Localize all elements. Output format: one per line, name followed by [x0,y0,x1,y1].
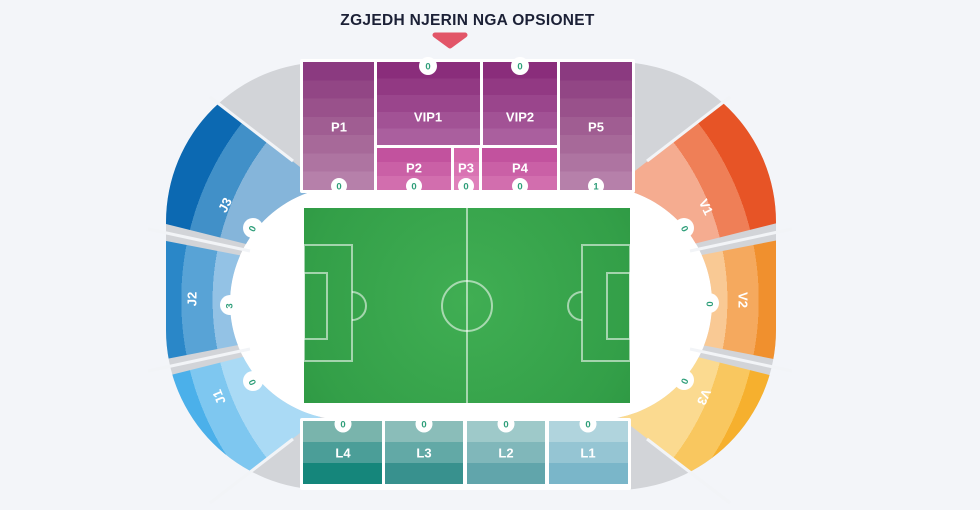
badge-l1-count: 0 [585,420,590,431]
badge-l1: 0 [580,416,597,433]
section-vip1-label: VIP1 [414,110,442,125]
badge-p1: 0 [331,178,347,194]
badge-vip2: 0 [511,57,529,75]
page-background: ZGJEDH NJERIN NGA OPSIONET [0,0,980,510]
section-p2-label: P2 [406,161,422,176]
badge-l4: 0 [335,416,352,433]
badge-p4-count: 0 [517,182,522,193]
section-p1-label: P1 [331,120,347,135]
badge-l2-count: 0 [503,420,508,431]
badge-j2: 3 [220,295,240,315]
badge-v1: 0 [674,218,694,238]
badge-l3: 0 [416,416,433,433]
section-p4-label: P4 [512,161,529,176]
section-vip2-label: VIP2 [506,110,534,125]
badge-p3-count: 0 [463,182,468,193]
badge-j2-count: 3 [225,303,236,308]
badge-vip1-count: 0 [425,62,430,73]
football-pitch [304,208,630,403]
badge-vip2-count: 0 [517,62,522,73]
section-p3-label: P3 [458,161,474,176]
badge-p5: 1 [588,178,604,194]
badge-v3: 0 [674,370,694,390]
section-v2-label: V2 [736,292,751,308]
section-p5-label: P5 [588,120,604,135]
badge-p5-count: 1 [593,182,599,193]
badge-p1-count: 0 [336,182,341,193]
badge-j1: 0 [243,371,263,391]
section-l1-label: L1 [580,446,595,461]
badge-vip1: 0 [419,57,437,75]
badge-v2: 0 [699,293,719,313]
badge-p4: 0 [512,178,528,194]
badge-p2-count: 0 [411,182,416,193]
badge-l4-count: 0 [340,420,345,431]
badge-v2-count: 0 [704,301,715,306]
badge-p3: 0 [458,178,474,194]
badge-p2: 0 [406,178,422,194]
section-l4-label: L4 [335,446,351,461]
stadium-map: P1 VIP1 VIP2 P5 P2 P3 P4 J3 J2 J1 V1 V2 … [0,0,980,510]
badge-l2: 0 [498,416,515,433]
badge-j3: 0 [243,218,263,238]
section-l3-label: L3 [416,446,431,461]
badge-l3-count: 0 [421,420,426,431]
section-j2-label: J2 [185,292,200,306]
section-l2-label: L2 [498,446,513,461]
